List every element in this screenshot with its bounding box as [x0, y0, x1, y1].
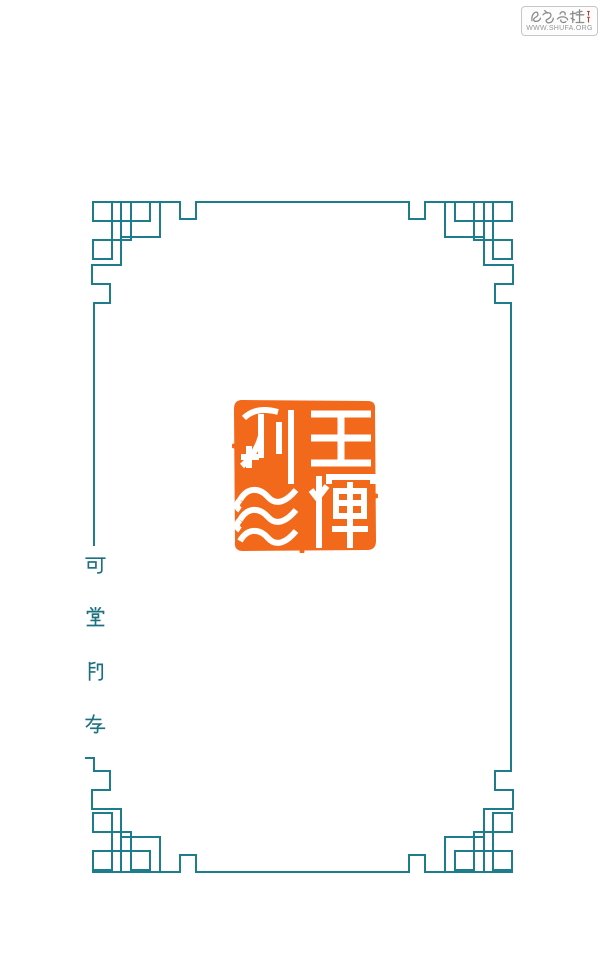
frame-hook-top-left — [121, 202, 160, 237]
frame-top-rail — [93, 202, 512, 219]
seal-impression — [232, 398, 378, 553]
scanned-page: WWW.SHUFA.ORG — [0, 0, 605, 964]
caption-char-yin — [85, 661, 106, 682]
caption-char-cun — [85, 714, 106, 735]
caption-char-tang — [85, 607, 106, 628]
frame-right-rail — [484, 202, 513, 872]
frame-left-rail-upper — [92, 202, 121, 545]
frame-left-rail-lower — [86, 758, 121, 872]
frame-hook-bottom-left — [121, 837, 160, 872]
frame-hook-top-right — [445, 202, 484, 237]
caption-column — [84, 554, 106, 735]
frame-bottom-rail — [93, 855, 512, 872]
frame-hook-bottom-right — [445, 837, 484, 872]
caption-char-ke — [85, 554, 106, 575]
